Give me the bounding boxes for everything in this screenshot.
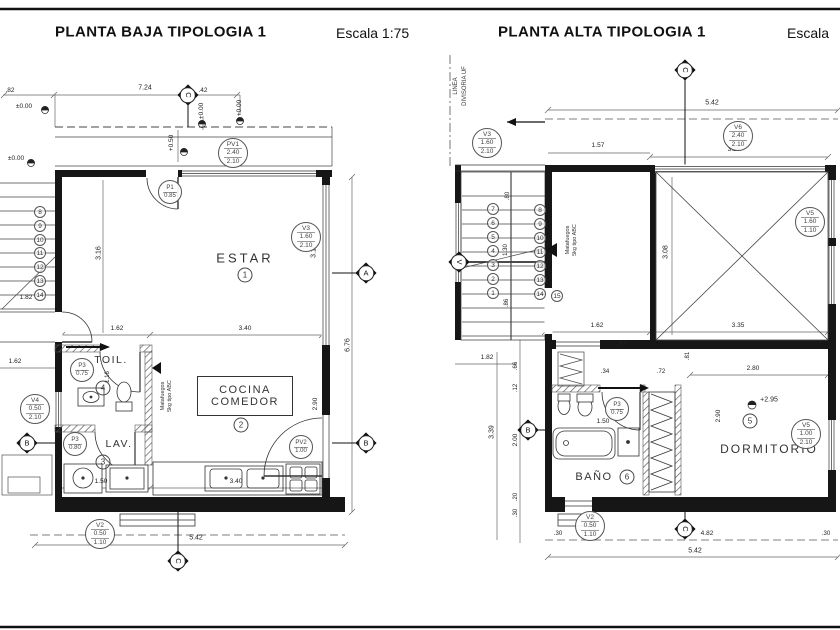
dim-stair: 1.82: [20, 295, 33, 302]
plan-linework: [0, 0, 840, 630]
dim-81: .81: [685, 352, 691, 360]
stair-step-12: 12: [34, 261, 46, 273]
dim-20: .20: [513, 493, 519, 501]
level-pm000-a: ±0.00: [16, 104, 32, 111]
level-p050: +0.50: [169, 135, 176, 151]
tag-pv2: PV21.00: [289, 435, 313, 459]
stair-step-13: 13: [34, 275, 46, 287]
note-matafuegos-right: Matafuegos 5kg tipo ABC: [565, 224, 579, 256]
dim-182-right: 1.82: [481, 355, 494, 362]
room-number-estar: 1: [238, 268, 253, 283]
stair-step-11b: 11: [534, 246, 546, 258]
dim-pv2-height: 2.90: [313, 398, 320, 411]
note-matafuegos-right-line2: 5kg tipo ABC: [572, 224, 578, 256]
dim-bottom-total-right: 5.42: [688, 548, 702, 555]
floorplan-sheet: PLANTA BAJA TIPOLOGIA 1 Escala 1:75 7.24…: [0, 0, 840, 630]
stair-step-5: 5: [487, 231, 499, 243]
tag-v2-left: V20.501.10: [85, 519, 115, 549]
dim-bottom-total: 5.42: [189, 535, 203, 542]
note-matafuegos-left-line1: Matafuegos: [160, 382, 166, 411]
stair-step-8: 8: [34, 206, 46, 218]
section-marker-c-bottom-right: C: [675, 519, 695, 539]
tag-p1: P10.85: [158, 180, 182, 204]
stair-step-9: 9: [34, 220, 46, 232]
tag-v6: V62.402.10: [723, 121, 753, 151]
dim-toil-width: 1.62: [111, 326, 124, 333]
section-marker-c-bottom-left: C: [168, 551, 188, 571]
dim-30-bottom-left: .30: [554, 531, 562, 537]
tag-v5-dorm: V51.002.10: [791, 419, 821, 449]
dim-right-width: .42: [198, 88, 207, 95]
dim-280: 2.80: [747, 366, 760, 373]
dim-stair-80: .80: [505, 192, 511, 200]
stair-step-4: 4: [487, 245, 499, 257]
right-plan-geometry: [450, 55, 840, 560]
room-number-cocina: 2: [234, 418, 249, 433]
note-matafuegos-right-line1: Matafuegos: [565, 226, 571, 255]
room-number-lav: 3: [96, 455, 111, 470]
right-plan-title: PLANTA ALTA TIPOLOGIA 1: [498, 24, 706, 41]
room-label-estar: ESTAR: [216, 251, 273, 266]
dim-toil-height: 1.16: [105, 371, 111, 383]
room-number-bano: 6: [620, 470, 635, 485]
level-p000-b: +0.00: [237, 100, 244, 116]
stair-step-15: 15: [551, 290, 563, 302]
section-marker-v: V: [449, 252, 469, 272]
section-marker-b-left: B: [17, 433, 37, 453]
room-label-cocina-line1: COCINA: [219, 384, 271, 396]
level-295: +2.95: [760, 397, 778, 404]
stair-step-6: 6: [487, 217, 499, 229]
dim-counter-width: 3.40: [230, 479, 243, 486]
dim-87: .87: [618, 341, 626, 347]
section-marker-b-right: B: [356, 433, 376, 453]
section-marker-a: A: [356, 263, 376, 283]
level-pm000-b: ±0.00: [8, 156, 24, 163]
dim-stair-130: 1.30: [503, 244, 509, 256]
room-label-lav: LAV.: [105, 438, 132, 450]
tag-v4: V40.502.10: [20, 394, 50, 424]
dim-30-bottom-right: .30: [822, 531, 830, 537]
stair-step-11: 11: [34, 247, 46, 259]
stair-step-14b: 14: [534, 288, 546, 300]
dim-top-total-right: 5.42: [705, 100, 719, 107]
dim-72: .72: [657, 369, 665, 375]
stair-step-13b: 13: [534, 274, 546, 286]
dim-308: 3.08: [663, 245, 670, 259]
dim-12: .12: [513, 384, 519, 392]
stair-step-9b: 9: [534, 218, 546, 230]
dim-estar-height: 3.16: [96, 246, 103, 260]
section-marker-b-right-plan: B: [518, 420, 538, 440]
left-plan-scale: Escala 1:75: [336, 25, 409, 41]
divisoria-label: LINEA DIVISORIA UF: [452, 66, 470, 106]
dim-162-right: 1.62: [591, 323, 604, 330]
right-plan-scale: Escala: [787, 25, 829, 41]
stair-step-10b: 10: [534, 232, 546, 244]
dim-total-width: 7.24: [138, 85, 152, 92]
stair-step-8b: 8: [534, 204, 546, 216]
tag-v3-left: V31.602.10: [291, 222, 321, 252]
divisoria-line1: LINEA: [453, 77, 459, 94]
dim-left-width: .82: [5, 88, 14, 95]
stair-step-14: 14: [34, 289, 46, 301]
room-number-dormitorio: 5: [743, 414, 758, 429]
stair-step-10: 10: [34, 234, 46, 246]
level-p000-a: +0.00: [199, 103, 206, 119]
stair-step-2: 2: [487, 273, 499, 285]
room-label-cocina-box: COCINA COMEDOR: [197, 376, 293, 416]
note-matafuegos-left-line2: 5kg tipo ABC: [167, 380, 173, 412]
stair-step-3: 3: [487, 259, 499, 271]
divisoria-line2: DIVISORIA UF: [462, 66, 468, 106]
dim-lav-width: 1.50: [95, 479, 108, 486]
dim-66: .66: [513, 362, 519, 370]
section-marker-c-top-left: C: [178, 85, 198, 105]
stair-step-1: 1: [487, 287, 499, 299]
dim-30-left: .30: [513, 509, 519, 517]
tag-pv1: PV12.402.10: [218, 138, 248, 168]
room-label-cocina-line2: COMEDOR: [211, 396, 279, 408]
section-marker-c-top-right: C: [675, 60, 695, 80]
dim-150-right: 1.50: [597, 419, 610, 426]
tag-p3-lav: P30.80: [63, 432, 87, 456]
tag-p3-bano: P30.75: [605, 397, 629, 421]
room-label-bano: BAÑO: [575, 471, 612, 483]
dim-290-right: 2.90: [716, 410, 723, 423]
dim-cocina-width: 3.40: [239, 326, 252, 333]
stair-step-7: 7: [487, 203, 499, 215]
dim-339: 3.39: [489, 425, 496, 439]
left-plan-title: PLANTA BAJA TIPOLOGIA 1: [55, 24, 266, 41]
stair-step-12b: 12: [534, 260, 546, 272]
dim-335: 3.35: [732, 323, 745, 330]
dim-stair-86: .86: [504, 299, 510, 307]
dim-edge: 1.62: [9, 359, 22, 366]
tag-p3-toil: P30.75: [70, 358, 94, 382]
dim-total-height: 6.76: [345, 338, 352, 352]
room-label-toil: TOIL.: [94, 354, 128, 366]
dim-34: .34: [601, 369, 609, 375]
tag-v5-top: V51.601.10: [795, 207, 825, 237]
left-plan-geometry: [0, 92, 356, 551]
dim-482: 4.82: [701, 531, 714, 538]
dim-157: 1.57: [592, 143, 605, 150]
tag-v2-right: V20.501.10: [575, 511, 605, 541]
tag-v3-right: V31.602.10: [472, 128, 502, 158]
note-matafuegos-left: Matafuegos 5kg tipo ABC: [160, 380, 174, 412]
